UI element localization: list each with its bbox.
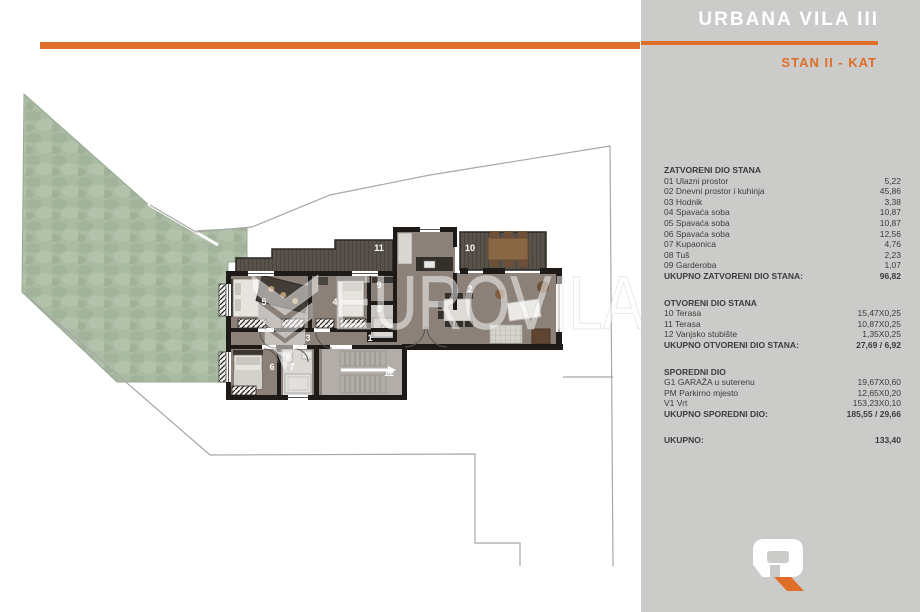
area-row-value: 10,87: [880, 218, 901, 229]
section-total-value: 96,82: [880, 271, 901, 282]
logo-r-mark: [752, 539, 804, 591]
panel-sections: ZATVORENI DIO STANA01 Ulazni prostor5,22…: [664, 165, 901, 446]
room-label-6: 6: [269, 362, 274, 372]
info-panel: URBANA VILA III STAN II - KAT ZATVORENI …: [641, 0, 920, 612]
accent-rule: [641, 41, 878, 45]
room-label-3: 3: [305, 333, 310, 343]
area-row-label: 07 Kupaonica: [664, 239, 716, 250]
area-row: 10 Terasa15,47X0,25: [664, 308, 901, 319]
area-row-value: 12,65X0,20: [858, 388, 901, 399]
area-row-label: 12 Vanjsko stubište: [664, 329, 737, 340]
bedroom-6-furniture: [232, 350, 263, 395]
section-total: UKUPNO ZATVORENI DIO STANA:96,82: [664, 271, 901, 282]
area-row: 02 Dnevni prostor i kuhinja45,86: [664, 186, 901, 197]
watermark-text: EUROVILA: [332, 261, 644, 346]
area-row-value: 45,86: [880, 186, 901, 197]
room-label-10: 10: [465, 243, 475, 253]
area-row-value: 3,38: [884, 197, 901, 208]
grand-total: UKUPNO:133,40: [664, 435, 901, 446]
area-row-label: 08 Tuš: [664, 250, 690, 261]
area-row: 09 Garderoba1,07: [664, 260, 901, 271]
area-row: 06 Spavaća soba12,56: [664, 229, 901, 240]
floorplan-sheet: 1 2 3 4 5 6 7 8 9 10 11 12 EUROVILA URBA…: [0, 0, 920, 612]
section-total-label: UKUPNO OTVORENI DIO STANA:: [664, 340, 799, 351]
area-row-label: 03 Hodnik: [664, 197, 702, 208]
area-row-label: PM Parkirno mjesto: [664, 388, 738, 399]
area-row-label: 02 Dnevni prostor i kuhinja: [664, 186, 765, 197]
section-total-value: 185,55 / 29,66: [847, 409, 901, 420]
area-row-label: 10 Terasa: [664, 308, 701, 319]
area-row-label: G1 GARAŽA u suterenu: [664, 377, 755, 388]
area-row-value: 15,47X0,25: [858, 308, 901, 319]
area-section: ZATVORENI DIO STANA01 Ulazni prostor5,22…: [664, 165, 901, 282]
area-row-value: 10,87X0,25: [858, 319, 901, 330]
kitchen-cabinet: [398, 233, 412, 264]
site-and-floor-plan: 1 2 3 4 5 6 7 8 9 10 11 12 EUROVILA: [0, 0, 660, 612]
section-total: UKUPNO OTVORENI DIO STANA:27,69 / 6,92: [664, 340, 901, 351]
area-row-label: 05 Spavaća soba: [664, 218, 730, 229]
garden-area: [22, 94, 247, 382]
area-row: 07 Kupaonica4,76: [664, 239, 901, 250]
area-row-value: 2,23: [884, 250, 901, 261]
project-title: URBANA VILA III: [641, 9, 879, 31]
area-row-value: 1,07: [884, 260, 901, 271]
section-total: UKUPNO SPOREDNI DIO:185,55 / 29,66: [664, 409, 901, 420]
area-row-label: 11 Terasa: [664, 319, 701, 330]
grand-total-value: 133,40: [875, 435, 901, 446]
area-row-label: 06 Spavaća soba: [664, 229, 730, 240]
room-label-11: 11: [374, 243, 384, 253]
logo-orange-leg: [774, 577, 804, 591]
agency-logo: [751, 537, 807, 595]
area-section: OTVORENI DIO STANA10 Terasa15,47X0,2511 …: [664, 298, 901, 351]
room-label-7: 7: [289, 362, 294, 372]
area-row: 08 Tuš2,23: [664, 250, 901, 261]
section-header: SPOREDNI DIO: [664, 367, 901, 378]
grand-total-label: UKUPNO:: [664, 435, 704, 446]
area-row: 05 Spavaća soba10,87: [664, 218, 901, 229]
area-row-value: 12,56: [880, 229, 901, 240]
section-total-label: UKUPNO ZATVORENI DIO STANA:: [664, 271, 803, 282]
area-row: 12 Vanjsko stubište1,35X0,25: [664, 329, 901, 340]
section-header: OTVORENI DIO STANA: [664, 298, 901, 309]
area-row-label: 04 Spavaća soba: [664, 207, 730, 218]
area-row-value: 153,23X0,10: [853, 398, 901, 409]
area-row-value: 10,87: [880, 207, 901, 218]
area-row: PM Parkirno mjesto12,65X0,20: [664, 388, 901, 399]
area-row-label: 09 Garderoba: [664, 260, 716, 271]
area-row-value: 5,22: [884, 176, 901, 187]
area-section: SPOREDNI DIOG1 GARAŽA u suterenu19,67X0,…: [664, 367, 901, 420]
area-row: 03 Hodnik3,38: [664, 197, 901, 208]
room-label-12: 12: [384, 368, 394, 378]
section-total-value: 27,69 / 6,92: [856, 340, 901, 351]
area-row-value: 4,76: [884, 239, 901, 250]
area-row-label: 01 Ulazni prostor: [664, 176, 728, 187]
area-row-value: 19,67X0,60: [858, 377, 901, 388]
area-row-value: 1,35X0,25: [862, 329, 901, 340]
section-total-label: UKUPNO SPOREDNI DIO:: [664, 409, 768, 420]
area-row: 11 Terasa10,87X0,25: [664, 319, 901, 330]
unit-subtitle: STAN II - KAT: [781, 55, 877, 70]
area-row: V1 Vrt153,23X0,10: [664, 398, 901, 409]
area-row: G1 GARAŽA u suterenu19,67X0,60: [664, 377, 901, 388]
area-row-label: V1 Vrt: [664, 398, 687, 409]
section-header: ZATVORENI DIO STANA: [664, 165, 901, 176]
area-row: 04 Spavaća soba10,87: [664, 207, 901, 218]
area-row: 01 Ulazni prostor5,22: [664, 176, 901, 187]
